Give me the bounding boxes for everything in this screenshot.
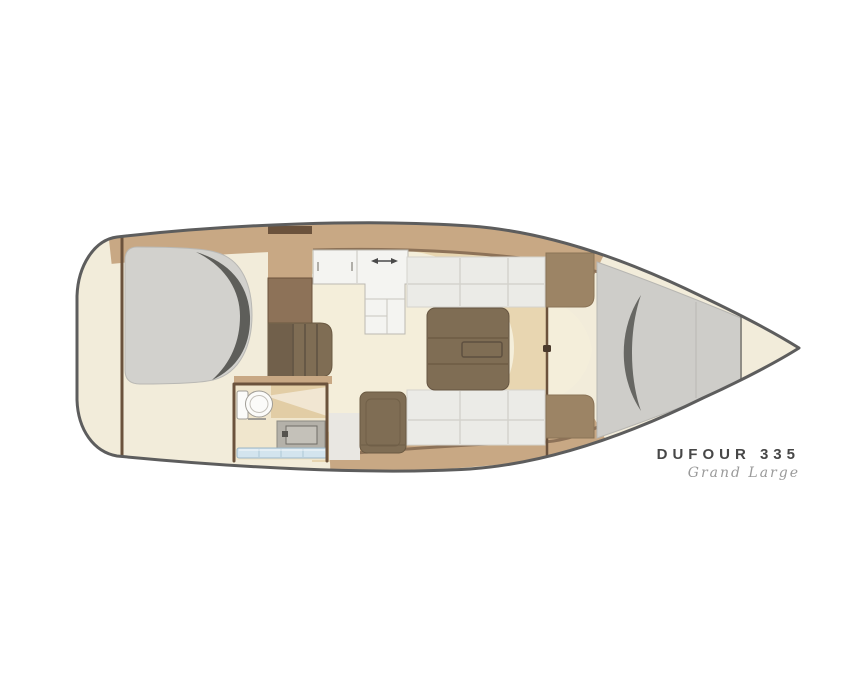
table-top — [427, 308, 509, 390]
brand-edition-text: Grand Large — [688, 465, 800, 481]
head-entry-floor — [329, 413, 360, 460]
companionway-steps — [268, 323, 332, 377]
brand-model-text: DUFOUR 335 — [657, 446, 800, 463]
yacht-floorplan-page: DUFOUR 335 Grand Large — [0, 0, 850, 700]
floor-plan: DUFOUR 335 Grand Large — [0, 0, 850, 700]
sink-unit — [277, 421, 325, 448]
toilet — [237, 391, 273, 419]
sink-basin — [286, 426, 317, 444]
wardrobe-upper — [268, 234, 312, 278]
forward-locker-top — [546, 253, 594, 307]
saloon-table — [427, 308, 509, 390]
shower-shelf — [237, 448, 327, 458]
steps-landing — [268, 324, 292, 376]
settee-bottom — [407, 390, 545, 445]
faucet — [282, 431, 288, 437]
door-knob — [543, 345, 551, 352]
wardrobe-top-trim — [268, 226, 312, 234]
forward-locker-bottom — [546, 395, 594, 438]
chart-table-seat — [360, 392, 406, 453]
wardrobe — [268, 226, 312, 323]
head-compartment — [234, 376, 332, 461]
settee-top — [407, 257, 545, 307]
wardrobe-lower — [268, 278, 312, 323]
